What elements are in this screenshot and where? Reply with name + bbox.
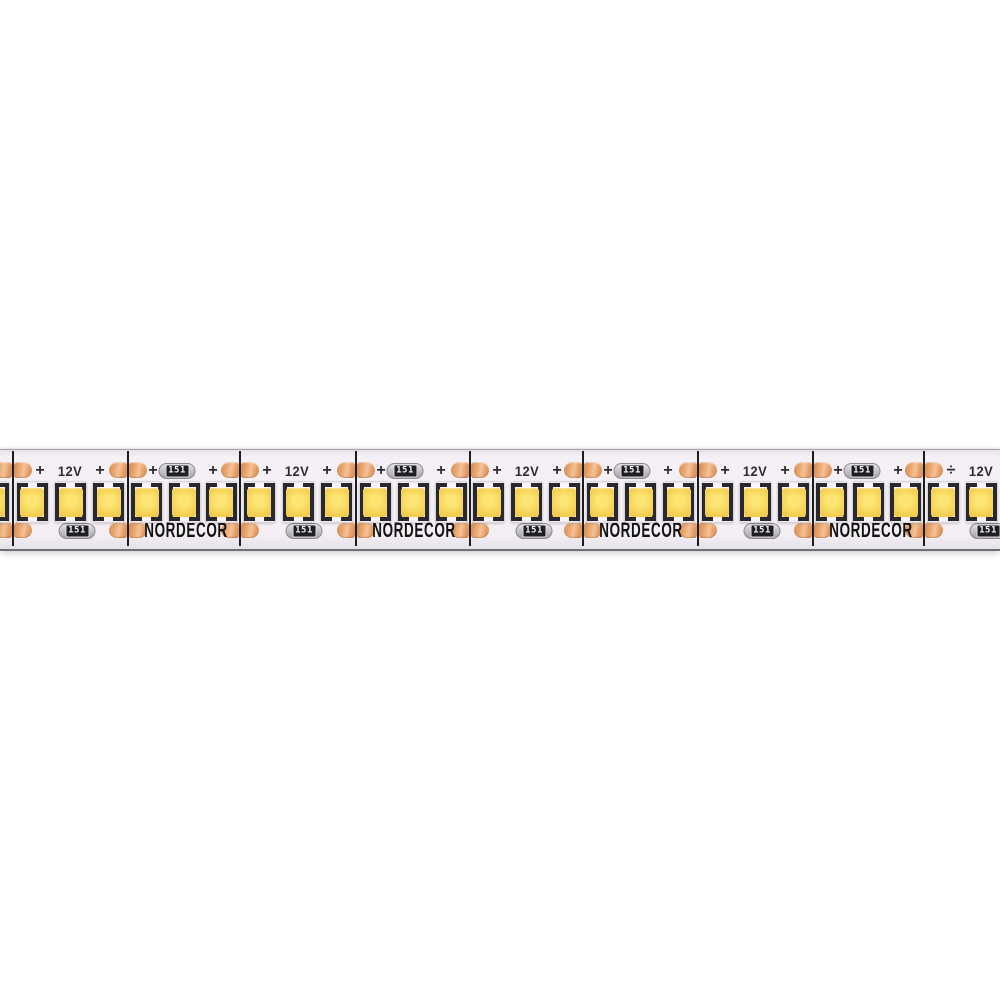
cut-line: [697, 451, 699, 546]
led-phosphor: [820, 488, 844, 517]
resistor-label: 151: [168, 467, 186, 476]
solder-pad: [0, 522, 12, 538]
led-chip: [130, 481, 163, 523]
led-chip: [548, 481, 581, 523]
solder-pad: [129, 462, 147, 478]
plus-mark: +: [893, 462, 902, 480]
led-phosphor: [857, 488, 881, 517]
cut-line: [127, 451, 129, 546]
led-chip: [852, 481, 885, 523]
solder-pad: [241, 522, 259, 538]
product-photo: +12V+151+151+NORDECOR+12V+151+151+NORDEC…: [0, 0, 1000, 1000]
plus-mark: +: [720, 462, 729, 480]
led-phosphor: [401, 488, 425, 517]
led-phosphor: [705, 488, 729, 517]
resistor: 151: [387, 463, 424, 479]
resistor-label: 151: [853, 467, 871, 476]
solder-pad: [905, 462, 923, 478]
led-phosphor: [931, 488, 955, 517]
led-chip: [435, 481, 468, 523]
solder-pad: [814, 462, 832, 478]
cut-line: [355, 451, 357, 546]
cut-line: [469, 451, 471, 546]
led-phosphor: [667, 488, 691, 517]
led-phosphor: [439, 488, 463, 517]
led-chip: [965, 481, 998, 523]
led-phosphor: [135, 488, 159, 517]
cut-line: [582, 451, 584, 546]
solder-pad: [794, 522, 812, 538]
led-phosphor: [782, 488, 806, 517]
solder-pad: [471, 522, 489, 538]
led-phosphor: [20, 488, 44, 517]
plus-mark: +: [95, 462, 104, 480]
led-phosphor: [172, 488, 196, 517]
led-phosphor: [209, 488, 233, 517]
led-phosphor: [286, 488, 310, 517]
plus-mark: +: [833, 462, 842, 480]
voltage-label: 12V: [285, 463, 309, 479]
resistor-band: 151: [750, 525, 774, 538]
solder-pad: [925, 522, 943, 538]
resistor-label: 151: [68, 527, 86, 536]
led-chip: [815, 481, 848, 523]
solder-pad: [109, 522, 127, 538]
resistor: 151: [614, 463, 651, 479]
led-phosphor: [59, 488, 83, 517]
led-chip: [472, 481, 505, 523]
solder-pad: [794, 462, 812, 478]
resistor-label: 151: [979, 527, 997, 536]
solder-pad: [14, 522, 32, 538]
solder-pad: [584, 462, 602, 478]
solder-pad: [471, 462, 489, 478]
led-chip: [205, 481, 238, 523]
resistor-band: 151: [393, 465, 417, 478]
solder-pad: [679, 462, 697, 478]
resistor: 151: [59, 523, 96, 539]
led-chip: [16, 481, 49, 523]
led-phosphor: [325, 488, 349, 517]
led-strip: +12V+151+151+NORDECOR+12V+151+151+NORDEC…: [0, 449, 1000, 551]
led-chip: [320, 481, 353, 523]
led-chip: [0, 481, 10, 523]
resistor-band: 151: [165, 465, 189, 478]
led-phosphor: [629, 488, 653, 517]
resistor: 151: [159, 463, 196, 479]
led-chip: [586, 481, 619, 523]
resistor-band: 151: [850, 465, 874, 478]
resistor-band: 151: [620, 465, 644, 478]
solder-pad: [337, 522, 355, 538]
led-phosphor: [969, 488, 993, 517]
plus-mark: +: [208, 462, 217, 480]
solder-pad: [14, 462, 32, 478]
led-phosphor: [0, 488, 5, 517]
led-phosphor: [97, 488, 121, 517]
led-phosphor: [363, 488, 387, 517]
plus-mark: +: [603, 462, 612, 480]
led-phosphor: [590, 488, 614, 517]
resistor: 151: [844, 463, 881, 479]
led-chip: [359, 481, 392, 523]
led-chip: [777, 481, 810, 523]
led-phosphor: [247, 488, 271, 517]
plus-mark: +: [148, 462, 157, 480]
led-phosphor: [477, 488, 501, 517]
solder-pad: [221, 462, 239, 478]
cut-line: [239, 451, 241, 546]
solder-pad: [564, 522, 582, 538]
resistor: 151: [286, 523, 323, 539]
voltage-label: 12V: [515, 463, 539, 479]
plus-mark: +: [376, 462, 385, 480]
led-chip: [397, 481, 430, 523]
resistor-label: 151: [623, 467, 641, 476]
led-chip: [510, 481, 543, 523]
led-phosphor: [894, 488, 918, 517]
plus-mark: +: [322, 462, 331, 480]
resistor-label: 151: [396, 467, 414, 476]
led-chip: [662, 481, 695, 523]
solder-pad: [337, 462, 355, 478]
resistor-label: 151: [753, 527, 771, 536]
resistor-band: 151: [522, 525, 546, 538]
cut-line: [923, 451, 925, 546]
plus-mark: +: [492, 462, 501, 480]
resistor-band: 151: [65, 525, 89, 538]
cut-line: [812, 451, 814, 546]
plus-mark: +: [436, 462, 445, 480]
led-chip: [168, 481, 201, 523]
solder-pad: [357, 462, 375, 478]
led-chip: [927, 481, 960, 523]
led-chip: [701, 481, 734, 523]
plus-mark: +: [552, 462, 561, 480]
resistor: 151: [516, 523, 553, 539]
led-chip: [282, 481, 315, 523]
led-chip: [54, 481, 87, 523]
led-phosphor: [744, 488, 768, 517]
led-chip: [739, 481, 772, 523]
solder-pad: [451, 462, 469, 478]
solder-pad: [699, 462, 717, 478]
solder-pad: [699, 522, 717, 538]
plus-mark: ÷: [947, 462, 956, 480]
resistor: 151: [970, 523, 1000, 539]
voltage-label: 12V: [58, 463, 82, 479]
resistor-band: 151: [292, 525, 316, 538]
led-phosphor: [552, 488, 576, 517]
led-chip: [243, 481, 276, 523]
solder-pad: [109, 462, 127, 478]
voltage-label: 12V: [969, 463, 993, 479]
led-chip: [889, 481, 922, 523]
solder-pad: [564, 462, 582, 478]
cut-line: [12, 451, 14, 546]
resistor-label: 151: [525, 527, 543, 536]
resistor-band: 151: [976, 525, 1000, 538]
solder-pad: [0, 462, 12, 478]
plus-mark: +: [663, 462, 672, 480]
voltage-label: 12V: [743, 463, 767, 479]
resistor-label: 151: [295, 527, 313, 536]
plus-mark: +: [262, 462, 271, 480]
led-chip: [624, 481, 657, 523]
solder-pad: [925, 462, 943, 478]
solder-pad: [241, 462, 259, 478]
plus-mark: +: [780, 462, 789, 480]
led-chip: [92, 481, 125, 523]
resistor: 151: [744, 523, 781, 539]
plus-mark: +: [35, 462, 44, 480]
led-phosphor: [515, 488, 539, 517]
